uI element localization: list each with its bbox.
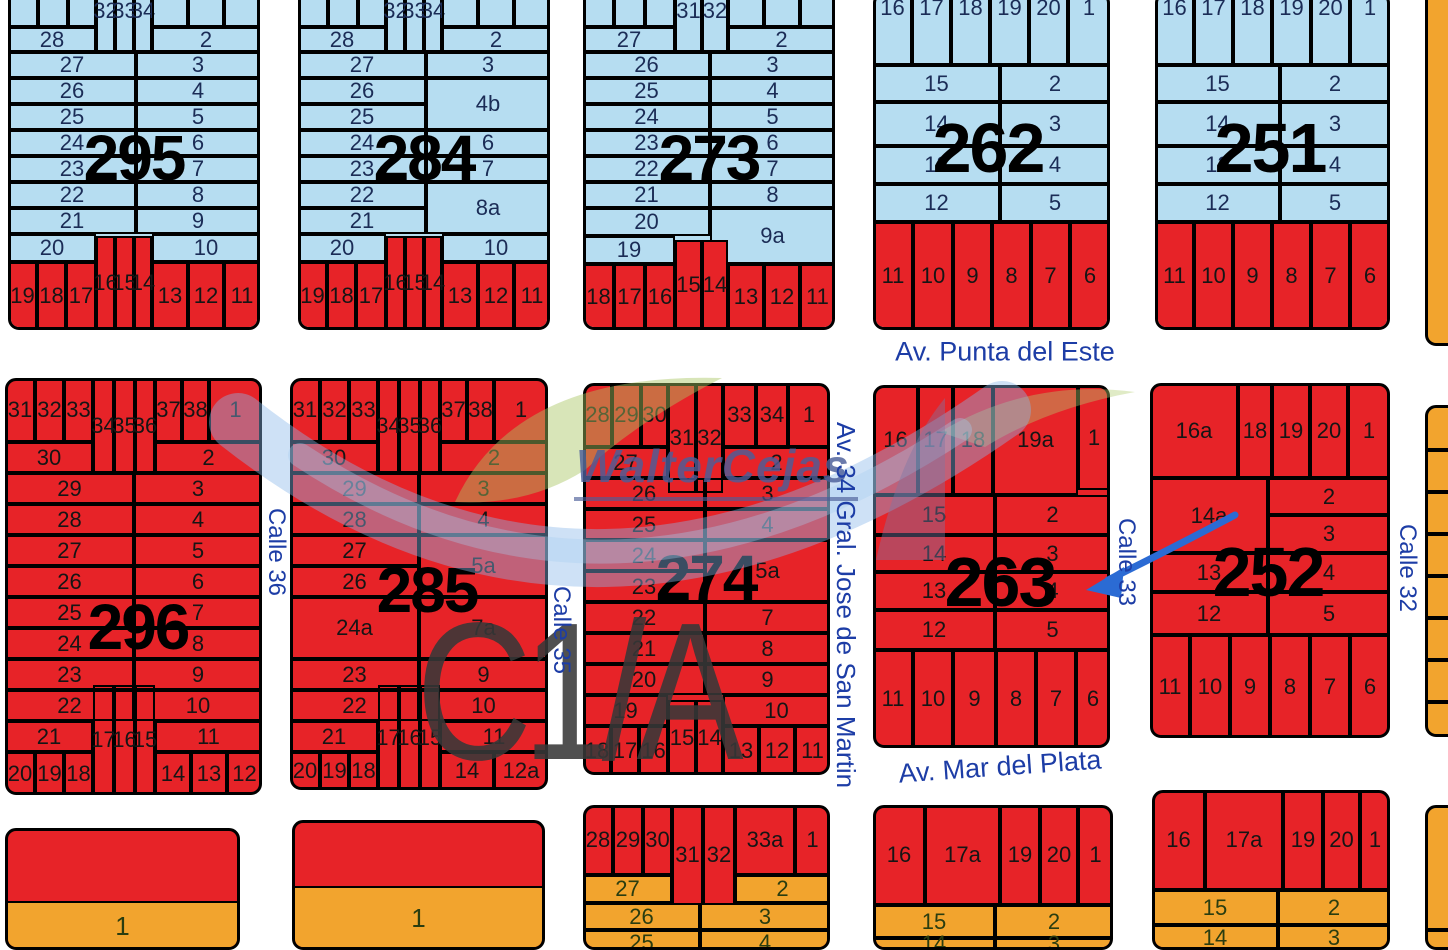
lot-284-13: 13 [442, 262, 478, 330]
lot-296-1: 1 [209, 378, 262, 442]
block-b-s-263: 1617a19201152143 [873, 805, 1113, 950]
lot-label: 9 [192, 210, 204, 232]
lot-label: 3 [1329, 113, 1341, 135]
lot-label: 2 [490, 29, 502, 51]
lot-273-9a: 9a [710, 208, 835, 264]
lot-label: 9 [968, 688, 980, 710]
lot-label: 19 [617, 239, 641, 261]
lot-296-20: 20 [5, 752, 35, 795]
lot-label: 28 [330, 29, 354, 51]
lot-b-s-central-28: 28 [583, 805, 613, 875]
block-strip-ne [1425, 0, 1448, 346]
lot-label: 4 [759, 932, 771, 950]
lot-label: 19 [300, 285, 324, 307]
lot-label: 23 [634, 132, 658, 154]
lot-296-13: 13 [191, 752, 227, 795]
lot-label: 26 [629, 906, 653, 928]
lot-252-9: 9 [1230, 635, 1270, 738]
lot-label: 23 [350, 158, 374, 180]
block-number-273: 273 [659, 126, 760, 190]
lot-label: 1 [803, 404, 815, 426]
lot-273-32: 32 [702, 0, 728, 52]
lot-label: 26 [634, 54, 658, 76]
lot-label: 30 [37, 447, 61, 469]
lot-296-11: 11 [155, 721, 262, 752]
lot-284-12: 12 [478, 262, 514, 330]
lot-label: 10 [194, 237, 218, 259]
lot-label: 5 [766, 106, 778, 128]
lot-label: 28 [57, 509, 81, 531]
lot-label: 26 [350, 80, 374, 102]
lot-strip-e [1425, 492, 1448, 534]
lot-label: 27 [57, 540, 81, 562]
lot-295-12: 12 [188, 262, 224, 330]
lot-label: 33a [747, 829, 784, 851]
lot-296-12: 12 [227, 752, 262, 795]
lot-273 [583, 0, 614, 27]
block-number-284: 284 [374, 126, 475, 190]
lot-label: 18 [39, 285, 63, 307]
lot-263-10: 10 [913, 650, 953, 748]
lot-label: 17 [69, 285, 93, 307]
cadastral-map: WalterCejas C1/A 32333428227326425524623… [0, 0, 1448, 950]
lot-label: 29 [342, 478, 366, 500]
lot-label: 10 [484, 237, 508, 259]
lot-296-4: 4 [134, 504, 262, 535]
lot-252-8: 8 [1270, 635, 1310, 738]
lot-label: 4 [1323, 562, 1335, 584]
lot-b-s-central-26: 26 [583, 903, 700, 930]
lot-label: 16 [1162, 0, 1186, 19]
lot-label: 14 [421, 272, 445, 294]
lot-251-12: 12 [1155, 184, 1280, 222]
lot-label: 20 [40, 237, 64, 259]
lot-label: 7 [761, 607, 773, 629]
lot-label: 6 [192, 132, 204, 154]
lot-label: 8 [1284, 676, 1296, 698]
lot-label: 11 [1163, 265, 1186, 287]
lot-label: 17a [1226, 829, 1263, 851]
lot-251-1: 1 [1350, 0, 1390, 65]
lot-label: 19 [322, 760, 346, 782]
lot-273-18: 18 [583, 264, 614, 330]
lot-b-s-263-1: 1 [1078, 805, 1113, 905]
lot-label: 1 [1089, 844, 1101, 866]
lot-label: 19a [1017, 429, 1054, 451]
lot-label: 22 [57, 695, 81, 717]
lot-label: 3 [759, 906, 771, 928]
lot-label: 33 [351, 399, 375, 421]
lot-274-10: 10 [723, 695, 830, 726]
lot-274-33: 33 [723, 383, 756, 447]
lot-label: 3 [192, 478, 204, 500]
lot-label: 2 [200, 29, 212, 51]
lot-label: 12 [924, 192, 948, 214]
lot-label: 6 [1087, 688, 1099, 710]
lot-strip-e [1425, 618, 1448, 660]
lot-262-20: 20 [1029, 0, 1068, 65]
lot-label: 10 [764, 700, 788, 722]
lot-label: 24 [634, 106, 658, 128]
lot-296-33: 33 [64, 378, 93, 442]
lot-label: 13 [158, 285, 182, 307]
lot-label: 28 [342, 509, 366, 531]
lot-label: 38 [183, 399, 207, 421]
lot-295 [224, 0, 260, 27]
lot-b-s-central-30: 30 [643, 805, 672, 875]
lot-label: 2 [1323, 486, 1335, 508]
lot-252-18: 18 [1238, 383, 1272, 478]
lot-295-18: 18 [37, 262, 66, 330]
lot-b-s-central-4: 4 [700, 930, 830, 950]
lot-273-25: 25 [583, 78, 710, 104]
lot-label: 10 [921, 265, 945, 287]
lot-label: 4 [1329, 154, 1341, 176]
block-strip-se [1425, 805, 1448, 950]
lot-296-32: 32 [35, 378, 64, 442]
lot-296-19: 19 [35, 752, 64, 795]
lot-262-16: 16 [873, 0, 912, 65]
lot-strip-e [1425, 450, 1448, 492]
lot-label: 5 [1323, 603, 1335, 625]
lot-label: 14 [922, 933, 946, 950]
lot-strip-e [1425, 576, 1448, 618]
street-label-calle-33: Calle 33 [1114, 518, 1138, 606]
lot-label: 3 [192, 54, 204, 76]
lot-b-s-central-33a: 33a [735, 805, 795, 875]
lot-label: 11 [806, 286, 829, 308]
street-label-av-34-gral-jose-de-san-martin: Av. 34 Gral. Jose de San Martin [833, 422, 859, 788]
lot-label: 6 [766, 132, 778, 154]
lot-b-s-263-20: 20 [1040, 805, 1078, 905]
lot-label: 1 [411, 905, 425, 931]
lot-label: 25 [350, 106, 374, 128]
lot-273-26: 26 [583, 52, 710, 78]
block-251: 1617181920115214313412511109876251 [1155, 0, 1390, 330]
lot-296-5: 5 [134, 535, 262, 566]
street-label-calle-35: Calle 35 [549, 586, 573, 674]
lot-label: 26 [342, 571, 366, 593]
lot-label: 4 [1049, 154, 1061, 176]
lot-label: 16 [887, 844, 911, 866]
lot-label: 12 [1205, 192, 1229, 214]
block-b-s-252: 1617a19201152143 [1152, 790, 1390, 950]
lot-label: 13 [197, 763, 221, 785]
lot-295-11: 11 [224, 262, 260, 330]
lot-label: 8 [192, 633, 204, 655]
lot-b-s-252-1: 1 [1360, 790, 1390, 890]
lot-252-1: 1 [1348, 383, 1390, 478]
lot-295-13: 13 [152, 262, 188, 330]
lot-strip-se [1425, 805, 1448, 930]
lot-label: 26 [57, 571, 81, 593]
lot-label: 11 [197, 726, 220, 748]
block-strip-e [1425, 405, 1448, 737]
lot-label: 1 [1363, 420, 1375, 442]
lot-label: 11 [882, 265, 905, 287]
lot-285-32: 32 [320, 378, 349, 442]
lot-label: 11 [521, 285, 544, 307]
lot-b-s-central-2: 2 [735, 875, 830, 903]
lot-label: 1 [806, 829, 818, 851]
lot-label: 21 [60, 210, 84, 232]
street-label-calle-32: Calle 32 [1395, 524, 1419, 612]
lot-b-s-central-3: 3 [700, 903, 830, 930]
lot-251-19: 19 [1272, 0, 1311, 65]
lot-label: 15 [1205, 73, 1229, 95]
lot-296-28: 28 [5, 504, 134, 535]
lot-263-19a: 19a [993, 385, 1078, 495]
lot-296-37: 37 [155, 378, 182, 442]
lot-273-27: 27 [583, 27, 675, 52]
lot-263-15: 15 [873, 495, 995, 535]
lot-label: 2 [1049, 73, 1061, 95]
lot-label: 16 [883, 429, 907, 451]
lot-263-17: 17 [918, 385, 953, 495]
lot-label: 1 [515, 399, 527, 421]
block-295: 3233342822732642552462372282192010191817… [8, 0, 260, 330]
street-label-calle-36: Calle 36 [264, 508, 288, 596]
lot-label: 38 [468, 399, 492, 421]
lot-label: 1 [1369, 829, 1381, 851]
lot-284-2: 2 [442, 27, 550, 52]
lot-label: 26 [60, 80, 84, 102]
lot-263-11: 11 [873, 650, 913, 748]
lot-label: 2 [775, 29, 787, 51]
lot-label: 10 [1201, 265, 1225, 287]
lot-b-s-central-31: 31 [672, 805, 703, 905]
lot-label: 20 [293, 760, 317, 782]
lot-284 [478, 0, 514, 27]
lot-295-14: 14 [134, 236, 152, 330]
lot-251-7: 7 [1311, 222, 1350, 330]
lot-label: 30 [642, 404, 666, 426]
lot-strip-e [1425, 534, 1448, 576]
lot-label: 5a [755, 560, 779, 582]
lot-strip-e [1425, 660, 1448, 702]
lot-251-15: 15 [1155, 65, 1280, 102]
lot-b-s-252-16: 16 [1152, 790, 1205, 890]
lot-label: 25 [634, 80, 658, 102]
lot-label: 28 [585, 404, 609, 426]
lot-262-18: 18 [951, 0, 990, 65]
lot-285-2: 2 [440, 442, 548, 473]
lot-label: 31 [675, 844, 699, 866]
lot-label: 12 [232, 763, 256, 785]
lot-label: 21 [634, 184, 658, 206]
lot-label: 16a [1176, 420, 1213, 442]
lot-label: 32 [703, 0, 727, 22]
lot-263-16: 16 [873, 385, 918, 495]
lot-251-5: 5 [1280, 184, 1390, 222]
lot-label: 22 [60, 184, 84, 206]
lot-label: 36 [133, 415, 157, 437]
lot-label: 1 [1364, 0, 1376, 19]
lot-label: 11 [1159, 676, 1182, 698]
street-label-av-mar-del-plata: Av. Mar del Plata [898, 746, 1102, 787]
lot-273-17: 17 [614, 264, 645, 330]
lot-284-34: 34 [424, 0, 442, 52]
lot-label: 31 [8, 399, 32, 421]
lot-274-34: 34 [756, 383, 788, 447]
lot-label: 8 [1005, 265, 1017, 287]
lot-label: 2 [488, 447, 500, 469]
lot-262-2: 2 [1000, 65, 1110, 102]
lot-label: 8 [1285, 265, 1297, 287]
lot-274-28: 28 [583, 383, 612, 447]
lot-285-17: 17 [378, 685, 399, 790]
lot-b-s-252-20: 20 [1323, 790, 1360, 890]
lot-label: 3 [477, 478, 489, 500]
lot-label: 14 [161, 763, 185, 785]
lot-label: 4 [477, 509, 489, 531]
lot-label: 32 [37, 399, 61, 421]
lot-285-34: 34 [378, 378, 399, 473]
lot-label: 3 [1323, 523, 1335, 545]
lot-label: 4b [476, 93, 500, 115]
lot-label: 3 [1049, 113, 1061, 135]
lot-284 [358, 0, 386, 27]
lot-label: 25 [60, 106, 84, 128]
lot-label: 20 [1318, 0, 1342, 19]
lot-295-2: 2 [152, 27, 260, 52]
lot-b-s-252-17a: 17a [1205, 790, 1283, 890]
lot-label: 1 [229, 399, 241, 421]
lot-252-16a: 16a [1150, 383, 1238, 478]
lot-251-8: 8 [1272, 222, 1311, 330]
lot-label: 24 [57, 633, 81, 655]
lot-285-20: 20 [290, 752, 320, 790]
lot-273-2: 2 [728, 27, 835, 52]
lot-label: 7 [1324, 265, 1336, 287]
lot-b-s-263-14: 14 [873, 938, 995, 950]
lot-296-29: 29 [5, 473, 134, 504]
lot-label: 11 [801, 740, 824, 762]
lot-label: 27 [60, 54, 84, 76]
lot-label: 14 [922, 543, 946, 565]
lot-284 [442, 0, 478, 27]
lot-274-29: 29 [612, 383, 641, 447]
block-296: 3132333738130234353629328427526625724823… [5, 378, 262, 795]
lot-251-11: 11 [1155, 222, 1194, 330]
lot-label: 7 [1324, 676, 1336, 698]
lot-label: 33 [66, 399, 90, 421]
lot-285-1: 1 [494, 378, 548, 442]
lot-251-9: 9 [1233, 222, 1272, 330]
lot-label: 4 [761, 514, 773, 536]
lot-295 [152, 0, 188, 27]
lot-285-31: 31 [290, 378, 320, 442]
lot-label: 18 [958, 0, 982, 19]
lot-label: 9 [966, 265, 978, 287]
lot-273-16: 16 [645, 264, 675, 330]
lot-label: 21 [350, 210, 374, 232]
lot-label: 9 [1244, 676, 1256, 698]
block-number-252: 252 [1213, 537, 1324, 607]
lot-273-31: 31 [675, 0, 702, 52]
lot-label: 7 [192, 602, 204, 624]
lot-label: 23 [57, 664, 81, 686]
lot-label: 29 [57, 478, 81, 500]
lot-label: 18 [1240, 0, 1264, 19]
lot-label: 27 [342, 540, 366, 562]
lot-label: 17 [617, 286, 641, 308]
lot-label: 13 [448, 285, 472, 307]
lot-label: 21 [322, 726, 346, 748]
lot-284-17: 17 [356, 262, 386, 330]
lot-295 [68, 0, 96, 27]
lot-273-15: 15 [675, 240, 702, 330]
lot-252-2: 2 [1268, 478, 1390, 515]
lot-273-20: 20 [583, 208, 710, 236]
lot-252-19: 19 [1272, 383, 1310, 478]
lot-251-20: 20 [1311, 0, 1350, 65]
lot-label: 2 [1046, 504, 1058, 526]
lot-label: 9 [761, 669, 773, 691]
lot-label: 17a [944, 844, 981, 866]
lot-b-s-263-16: 16 [873, 805, 925, 905]
lot-284-14: 14 [424, 236, 442, 330]
lot-label: 37 [441, 399, 465, 421]
lot-label: 7 [482, 158, 494, 180]
lot-295-34: 34 [134, 0, 152, 52]
lot-label: 36 [418, 415, 442, 437]
lot-295-10: 10 [152, 234, 260, 262]
lot-273-3: 3 [710, 52, 835, 78]
lot-273 [614, 0, 645, 27]
lot-label: 9 [192, 664, 204, 686]
lot-252-20: 20 [1310, 383, 1348, 478]
lot-label: 20 [1036, 0, 1060, 19]
lot-273 [764, 0, 800, 27]
lot-label: 7 [1044, 265, 1056, 287]
lot-295-19: 19 [8, 262, 37, 330]
lot-label: 1 [1083, 0, 1095, 19]
lot-273 [800, 0, 835, 27]
lot-label: 20 [1329, 829, 1353, 851]
lot-262-12: 12 [873, 184, 1000, 222]
lot-262-7: 7 [1031, 222, 1070, 330]
lot-label: 19 [1279, 420, 1303, 442]
lot-label: 4 [766, 80, 778, 102]
lot-b-s-central-29: 29 [613, 805, 643, 875]
lot-label: 18 [1243, 420, 1267, 442]
lot-296-18: 18 [64, 752, 93, 795]
lot-label: 24 [60, 132, 84, 154]
lot-251-2: 2 [1280, 65, 1390, 102]
lot-label: 12 [484, 285, 508, 307]
lot-label: 16 [648, 286, 672, 308]
lot-label: 21 [37, 726, 61, 748]
lot-label: 12 [922, 619, 946, 641]
lot-285-18: 18 [349, 752, 378, 790]
lot-label: 15 [924, 73, 948, 95]
lot-251-17: 17 [1194, 0, 1233, 65]
lot-label: 19 [997, 0, 1021, 19]
lot-295 [38, 0, 68, 27]
lot-b-s-central-27: 27 [583, 875, 672, 903]
lot-label: 18 [66, 763, 90, 785]
lot-285-30: 30 [290, 442, 378, 473]
lot-label: 10 [1198, 676, 1222, 698]
lot-262-17: 17 [912, 0, 951, 65]
lot-296-27: 27 [5, 535, 134, 566]
lot-295 [8, 0, 38, 27]
lot-label: 2 [202, 447, 214, 469]
lot-295-17: 17 [66, 262, 96, 330]
lot-label: 8 [1010, 688, 1022, 710]
lot-label: 24 [350, 132, 374, 154]
